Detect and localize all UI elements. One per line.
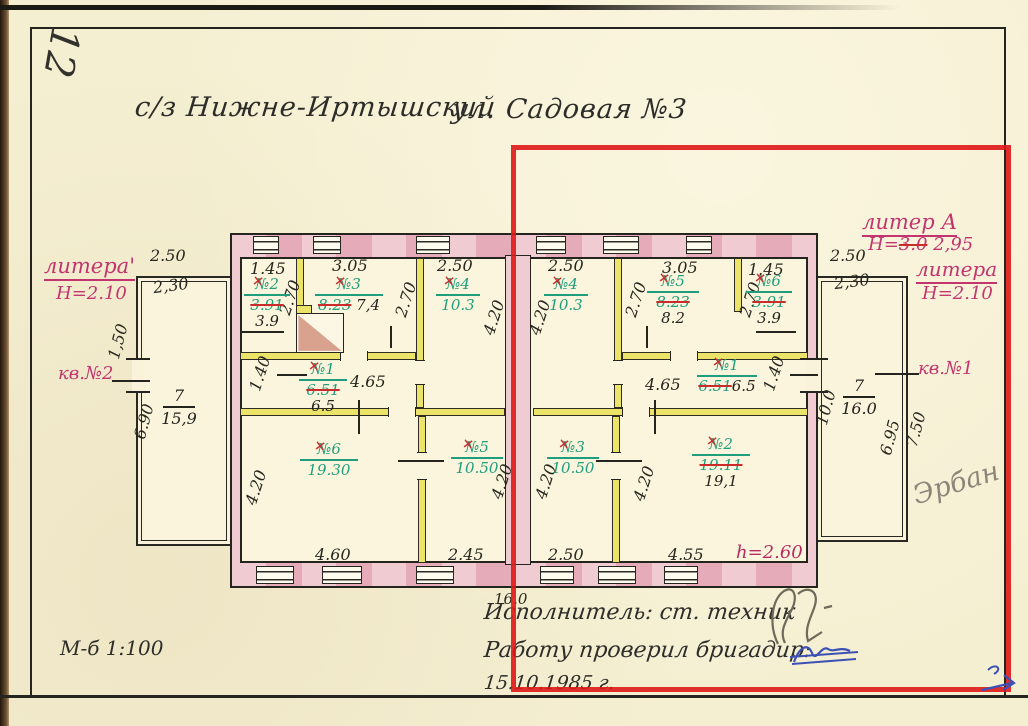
room-label: ✕№6 19.30	[292, 440, 366, 478]
room-label: ✕№4 10.3	[430, 275, 486, 313]
scanned-floor-plan-sheet: 12 с/з Нижне-Иртышский ул. Садовая №3	[0, 0, 1028, 726]
red-x-mark: ✕	[307, 359, 321, 375]
red-x-mark: ✕	[333, 274, 347, 290]
door-jamb-tick	[126, 391, 150, 393]
dim-label: 4.60	[315, 545, 351, 564]
scale-label: М-б 1:100	[60, 636, 163, 660]
dim-label: 2.45	[448, 545, 484, 564]
window	[322, 566, 362, 584]
window	[416, 236, 450, 254]
partition-wall	[416, 258, 424, 408]
window	[416, 566, 454, 584]
page-number: 12	[26, 22, 89, 85]
dimension-tick	[398, 460, 444, 462]
title-settlement: с/з Нижне-Иртышский	[133, 92, 497, 123]
dimension-tick	[240, 331, 284, 333]
frame-bottom-line	[0, 695, 1028, 698]
door-jamb-tick	[126, 358, 150, 360]
dimension-tick	[112, 380, 150, 382]
stove-hatch	[297, 314, 343, 352]
red-highlight-rectangle	[511, 145, 1011, 692]
door-opening	[388, 407, 416, 417]
page-left-edge	[0, 0, 9, 726]
room-label: ✕№2 3.91 3.9	[238, 275, 296, 329]
dim-label: 4.65	[350, 372, 386, 391]
door-opening	[415, 360, 425, 385]
window	[253, 236, 279, 254]
left-apartment-label: кв.№2	[58, 363, 113, 384]
room-label: ✕№1 6.51 6.5	[292, 360, 354, 414]
dim-label: 2.50	[437, 256, 473, 275]
room-label: ✕№3 8.23 7,4	[306, 275, 392, 313]
left-wing-height-label: Н=2.10	[56, 283, 127, 304]
window	[256, 566, 294, 584]
red-x-mark: ✕	[313, 439, 327, 455]
room-label-annex-left: 715,9	[158, 386, 200, 428]
partition-wall	[418, 416, 426, 563]
left-wing-litera-label: литера'	[44, 254, 135, 278]
dim-label: 2.50	[150, 246, 186, 265]
dimension-tick	[390, 326, 392, 348]
title-street: ул. Садовая №3	[450, 94, 688, 125]
window	[313, 236, 341, 254]
stove	[296, 313, 344, 353]
room-label: ✕№5 10.50	[444, 438, 510, 476]
dimension-tick	[358, 400, 360, 434]
red-x-mark: ✕	[251, 274, 265, 290]
left-annex-door-opening	[132, 360, 144, 393]
red-x-mark: ✕	[442, 274, 456, 290]
page-top-edge	[0, 5, 900, 10]
red-x-mark: ✕	[461, 437, 475, 453]
dim-label: 3.05	[332, 256, 368, 275]
corner-blue-mark	[976, 660, 1022, 700]
partition-wall	[240, 408, 505, 416]
door-opening	[417, 452, 427, 480]
